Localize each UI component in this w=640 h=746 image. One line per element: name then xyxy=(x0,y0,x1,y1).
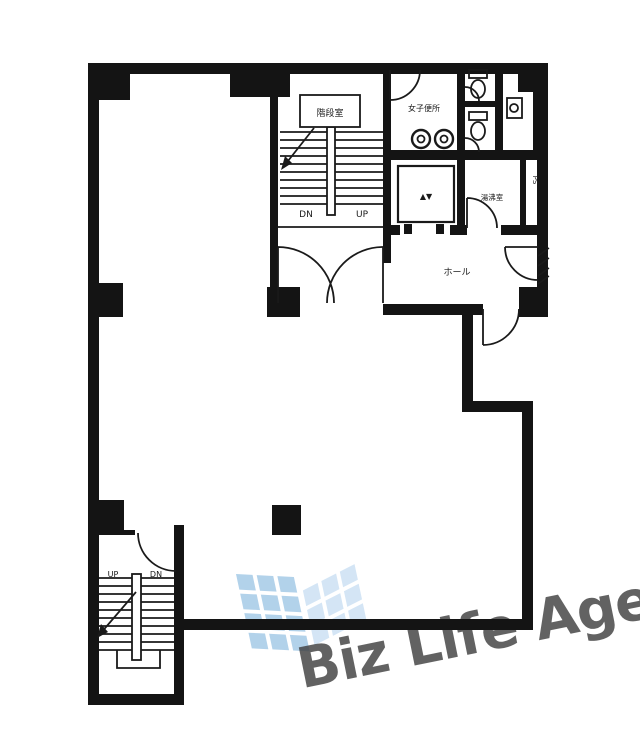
womens-toilet-label: 女子便所 xyxy=(408,103,440,113)
lower-stairs-dn-label: DN xyxy=(150,570,162,579)
kitchenette-label: 湯沸室 xyxy=(481,192,504,202)
toilet-stalls xyxy=(465,70,487,152)
floor-plan-scan: Biz Life Agent 階段室 DN UP 女子便所 xyxy=(0,0,640,746)
hall-label: ホール xyxy=(443,267,470,278)
stair-center-rail xyxy=(327,127,335,215)
pipe-space-label: PS xyxy=(531,176,539,185)
kitchenette-room xyxy=(467,198,497,228)
lower-stairs-up-label: UP xyxy=(108,570,119,579)
hall-right-door-arc xyxy=(505,247,538,280)
toilet-bowl-icon xyxy=(471,122,485,140)
upper-stairwell xyxy=(278,95,383,303)
upper-stairs-up-label: UP xyxy=(356,210,369,220)
urinal-icon xyxy=(510,104,518,112)
floor-plan-svg: Biz Life Agent 階段室 DN UP 女子便所 xyxy=(0,0,640,746)
basin-icon xyxy=(441,136,448,143)
hall-bottom-door-arc xyxy=(483,309,519,345)
lobby-door-right-arc xyxy=(327,247,383,303)
basin-icon xyxy=(435,130,453,148)
basin-icon xyxy=(412,130,430,148)
mens-toilet-room xyxy=(507,98,522,118)
door-arc xyxy=(390,70,420,100)
lower-stairwell xyxy=(97,533,176,668)
toilet-tank-icon xyxy=(469,112,487,120)
elevator-mark: ▲▼ xyxy=(420,192,433,201)
stair-center-rail xyxy=(132,574,141,660)
door-arc xyxy=(467,198,497,228)
stair-break-line xyxy=(100,592,136,634)
stair-room-label: 階段室 xyxy=(316,107,343,119)
door-arc xyxy=(138,533,176,571)
basin-icon xyxy=(418,136,425,143)
upper-stairs-dn-label: DN xyxy=(299,210,313,220)
